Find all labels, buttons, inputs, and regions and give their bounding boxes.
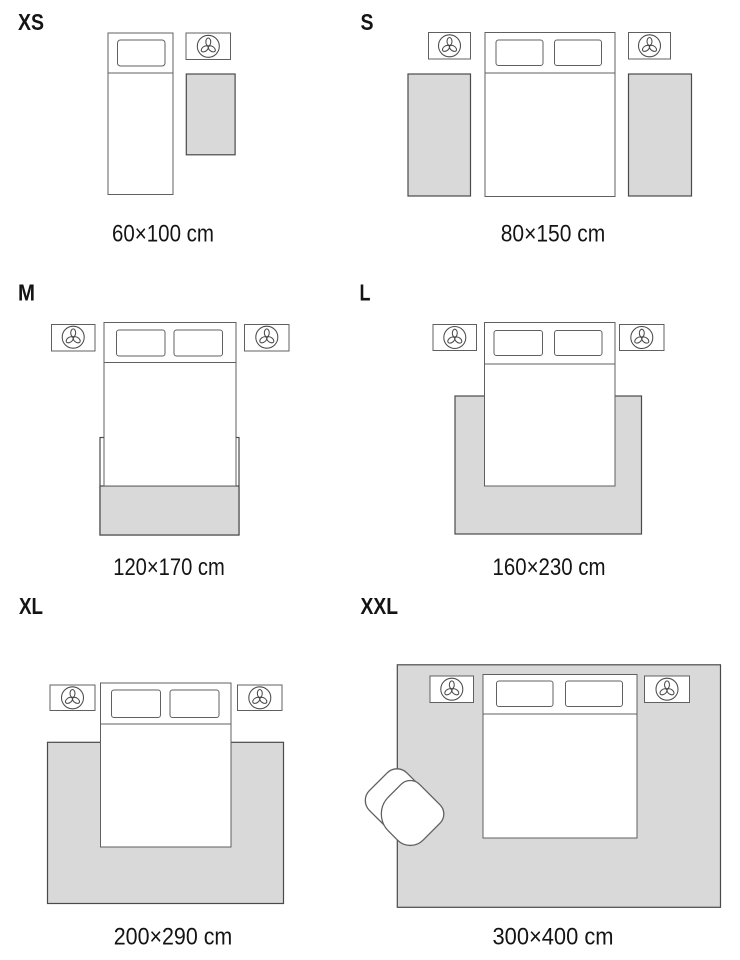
svg-text:200×290 cm: 200×290 cm (114, 924, 233, 951)
svg-text:S: S (361, 9, 374, 35)
svg-text:XL: XL (19, 593, 43, 619)
svg-text:80×150 cm: 80×150 cm (501, 221, 606, 248)
svg-text:300×400 cm: 300×400 cm (493, 924, 614, 951)
svg-text:60×100 cm: 60×100 cm (112, 221, 214, 248)
svg-text:120×170 cm: 120×170 cm (113, 554, 225, 581)
svg-text:160×230 cm: 160×230 cm (493, 554, 606, 581)
svg-text:XS: XS (18, 9, 44, 35)
svg-text:XXL: XXL (361, 593, 399, 619)
svg-text:M: M (18, 280, 35, 306)
svg-text:L: L (360, 280, 371, 306)
